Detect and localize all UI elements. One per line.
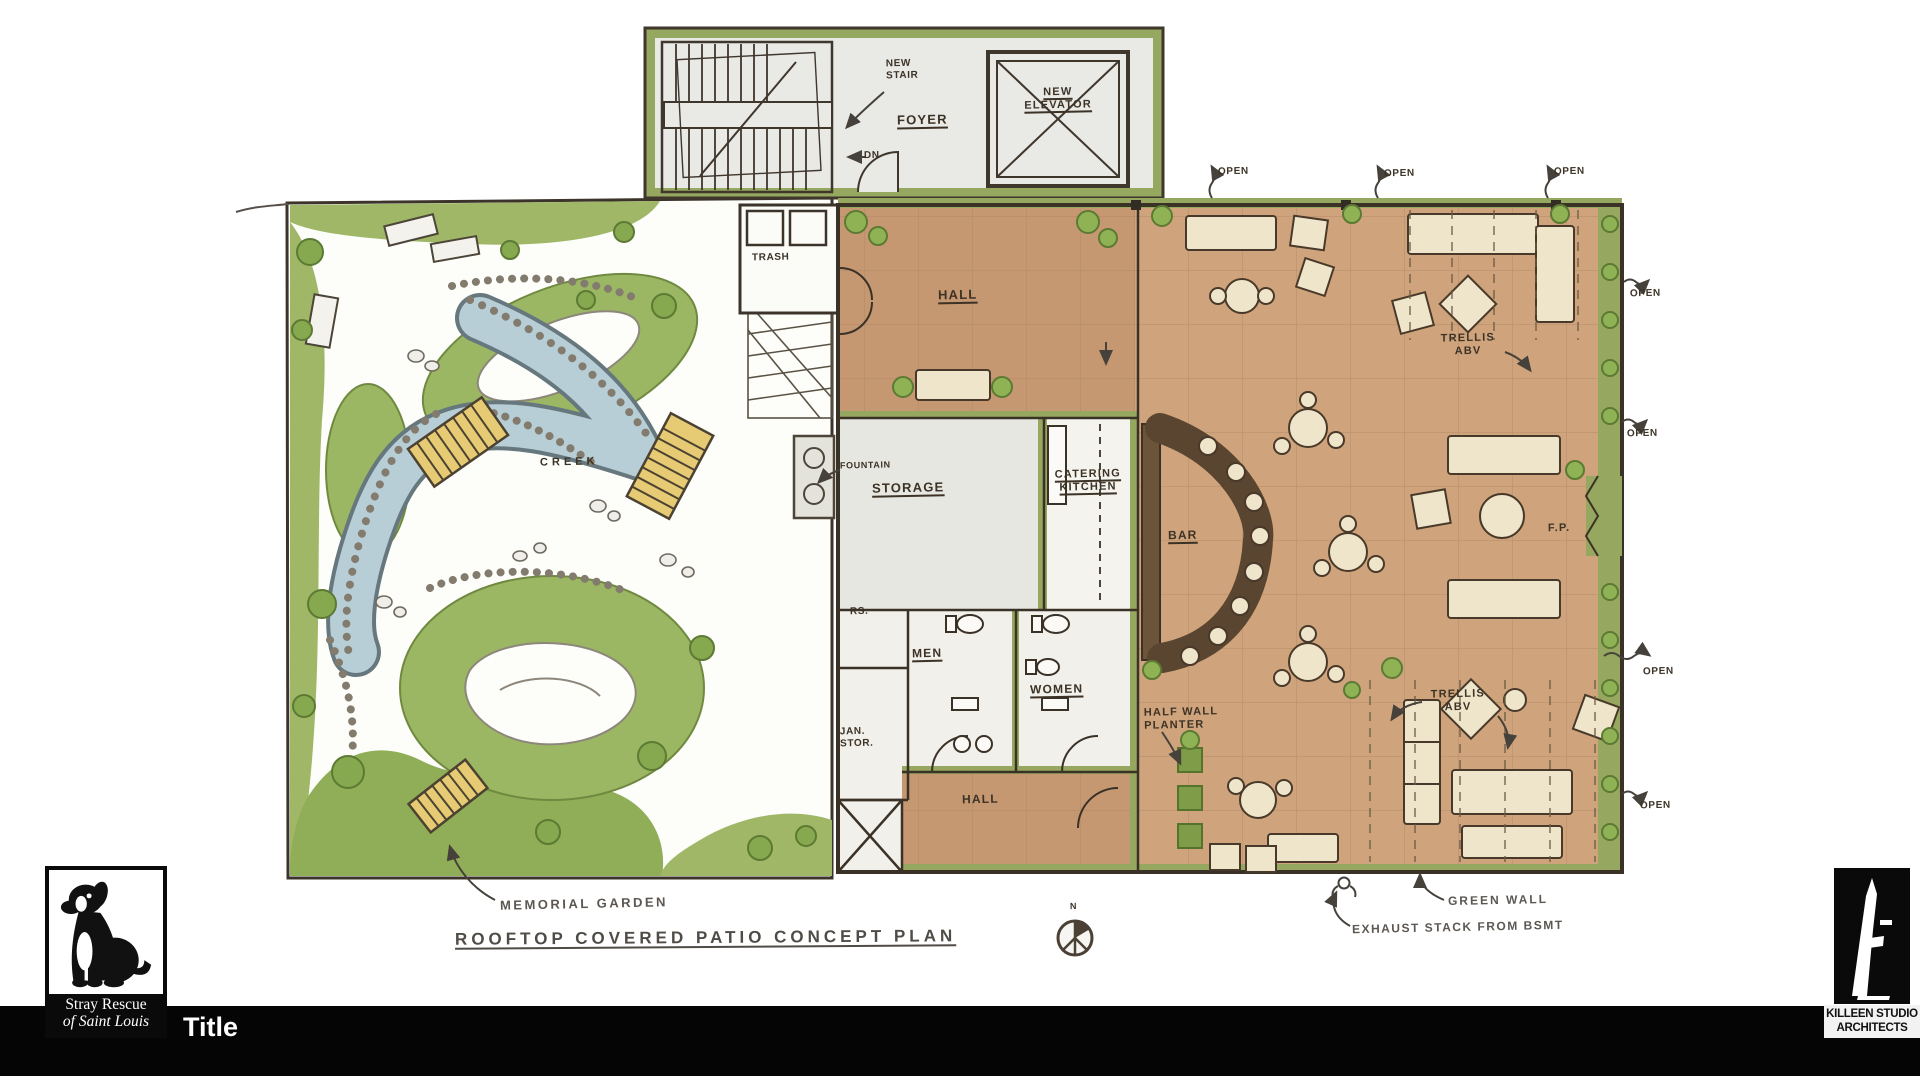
label-trash: TRASH [752, 252, 790, 265]
label-open-right-4: OPEN [1640, 800, 1671, 813]
label-hall-upper: HALL [938, 287, 978, 303]
killeen-studio-logo-text: KILLEEN STUDIO ARCHITECTS [1824, 1005, 1920, 1038]
label-rs: RS. [850, 606, 869, 618]
stray-rescue-dog-icon [49, 870, 163, 994]
killeen-line2: ARCHITECTS [1824, 1021, 1920, 1035]
stray-rescue-line1: Stray Rescue [45, 996, 167, 1013]
label-open-right-2: OPEN [1627, 428, 1658, 441]
label-fireplace: F.P. [1548, 522, 1571, 536]
label-open-top-3: OPEN [1554, 166, 1585, 179]
label-open-top-1: OPEN [1218, 166, 1249, 179]
plan-drawing [0, 0, 1920, 1080]
label-open-top-2: OPEN [1384, 168, 1415, 181]
stray-rescue-logo: Stray Rescue of Saint Louis [45, 866, 167, 1038]
label-open-right-1: OPEN [1630, 288, 1661, 301]
label-foyer: FOYER [897, 111, 948, 128]
label-new-elevator: NEW ELEVATOR [1018, 85, 1099, 113]
label-bar: BAR [1168, 528, 1198, 543]
killeen-building-icon [1834, 868, 1910, 1004]
label-trellis-abv-lower: TRELLIS ABV [1418, 687, 1499, 715]
label-new-stair: NEW STAIR [886, 58, 919, 83]
stray-rescue-logo-text: Stray Rescue of Saint Louis [45, 996, 167, 1031]
concept-plan-slide: NEW STAIR DN FOYER NEW ELEVATOR TRASH HA… [0, 0, 1920, 1080]
label-half-wall-planter: HALF WALL PLANTER [1144, 705, 1219, 733]
label-storage: STORAGE [872, 479, 945, 496]
label-men: MEN [912, 646, 943, 661]
slide-title: Title [183, 1012, 238, 1043]
label-trellis-abv-upper: TRELLIS ABV [1428, 331, 1509, 359]
label-women: WOMEN [1030, 681, 1084, 697]
label-green-wall: GREEN WALL [1448, 892, 1548, 908]
north-arrow [1058, 921, 1092, 955]
stray-rescue-line2: of Saint Louis [45, 1013, 167, 1030]
label-catering-kitchen: CATERING KITCHEN [1042, 467, 1135, 495]
footer-bar [0, 1006, 1920, 1076]
label-fountain: FOUNTAIN [840, 459, 891, 471]
killeen-studio-logo [1834, 868, 1910, 1004]
label-jan-stor: JAN. STOR. [840, 726, 874, 751]
drawing-title: ROOFTOP COVERED PATIO CONCEPT PLAN [455, 926, 956, 950]
killeen-line1: KILLEEN STUDIO [1824, 1007, 1920, 1021]
label-north: N [1070, 901, 1078, 912]
label-open-right-3: OPEN [1643, 666, 1674, 679]
fountain [794, 436, 834, 518]
label-dn: DN [864, 150, 880, 162]
label-creek: CREEK [540, 455, 599, 469]
label-hall-lower: HALL [962, 792, 999, 807]
